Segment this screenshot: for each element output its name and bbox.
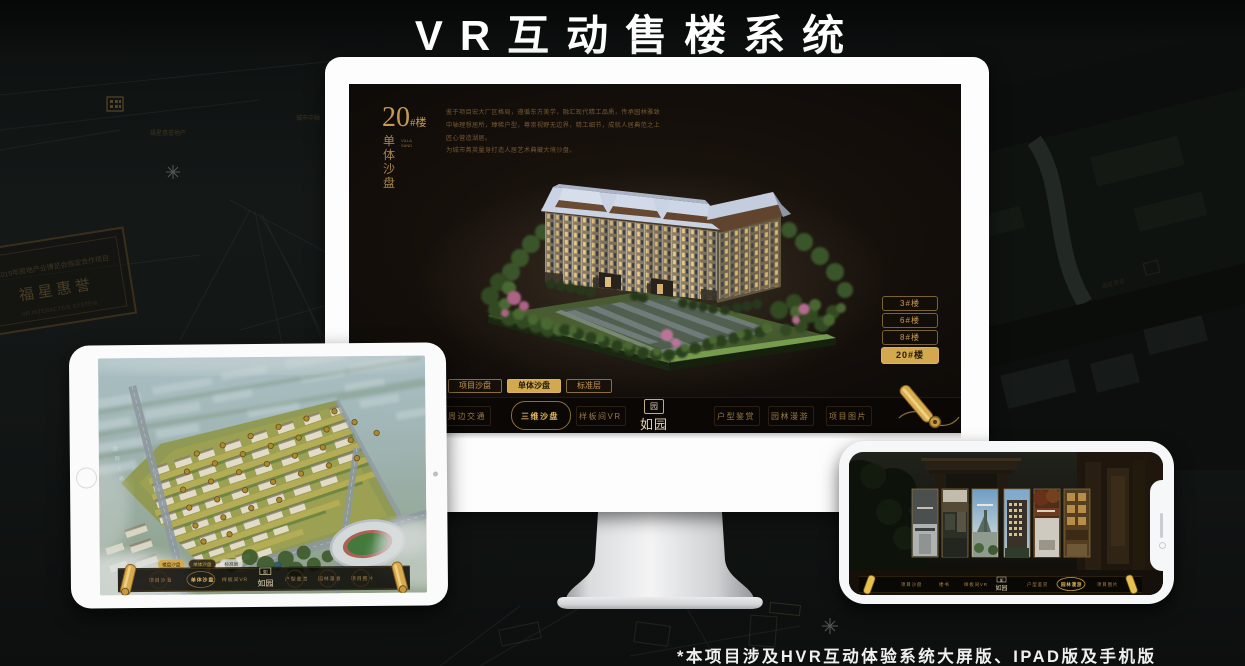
svg-text:项目沙盘: 项目沙盘 [149, 577, 172, 584]
svg-text:项目图片: 项目图片 [351, 575, 374, 582]
svg-text:如: 如 [263, 568, 268, 575]
svg-text:户型鉴赏: 户型鉴赏 [285, 576, 308, 583]
svg-text:户型鉴赏: 户型鉴赏 [1027, 581, 1048, 588]
svg-text:如园: 如园 [257, 578, 273, 588]
svg-text:项目图片: 项目图片 [1097, 581, 1118, 588]
svg-text:单体沙盘: 单体沙盘 [191, 576, 214, 583]
svg-text:园林漫游: 园林漫游 [318, 575, 341, 582]
svg-text:项目沙盘: 项目沙盘 [901, 581, 922, 588]
svg-text:样板间VR: 样板间VR [222, 576, 248, 583]
svg-text:园林漫游: 园林漫游 [1061, 581, 1082, 588]
svg-text:样板间VR: 样板间VR [964, 581, 988, 588]
svg-text:福星惠誉地产: 福星惠誉地产 [150, 129, 186, 137]
svg-text:如: 如 [1000, 578, 1004, 583]
svg-text:楼书: 楼书 [939, 581, 950, 588]
svg-text:如园: 如园 [995, 584, 1007, 592]
svg-text:城市中轴: 城市中轴 [296, 114, 320, 122]
